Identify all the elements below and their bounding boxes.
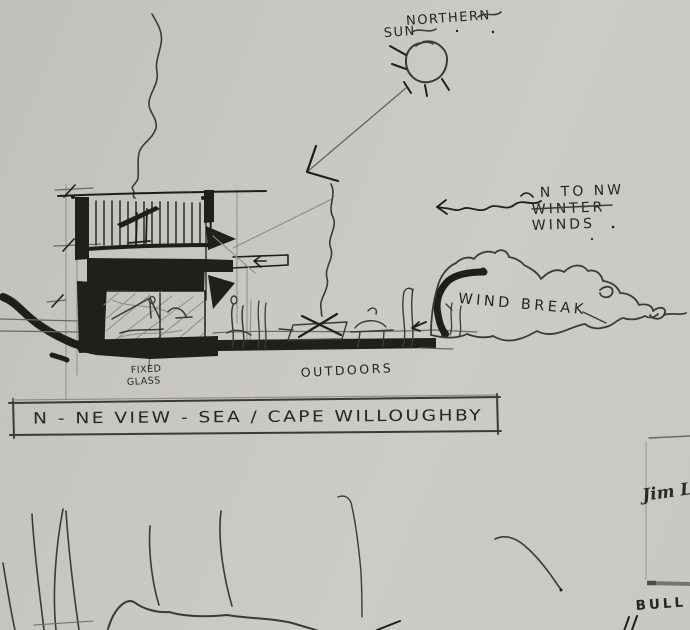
sun-ray-arrow (307, 88, 406, 181)
label-outdoors: OUTDOORS (300, 360, 393, 380)
wind-arrow (437, 193, 541, 214)
terrain-line (108, 601, 400, 630)
margin-notes: Jim L BULL (624, 436, 690, 630)
label-fixed-glass-1: FIXED (131, 363, 162, 376)
title-box: N - NE VIEW - SEA / CAPE WILLOUGHBY (9, 394, 501, 438)
label-winds-1: N TO NW (540, 182, 625, 201)
note-bull: BULL (635, 595, 686, 614)
interior-furniture-scribbles (112, 297, 192, 334)
grass-strokes (3, 509, 232, 630)
title-text: N - NE VIEW - SEA / CAPE WILLOUGHBY (33, 406, 483, 427)
building-section (0, 184, 477, 399)
label-fixed-glass-2: GLASS (127, 375, 161, 388)
wavy-line-sketch (132, 14, 161, 198)
drawing-page: NORTHERN SUN N TO NW WINTER WINDS WIND B… (0, 0, 690, 630)
sketch-canvas: NORTHERN SUN N TO NW WINTER WINDS WIND B… (0, 0, 690, 630)
label-wind-break: WIND BREAK (458, 291, 588, 318)
curved-strokes (338, 496, 563, 617)
sun-sketch (390, 41, 449, 96)
label-winds-3: WINDS (532, 216, 596, 234)
label-northern-sun-1: NORTHERN (406, 8, 492, 29)
